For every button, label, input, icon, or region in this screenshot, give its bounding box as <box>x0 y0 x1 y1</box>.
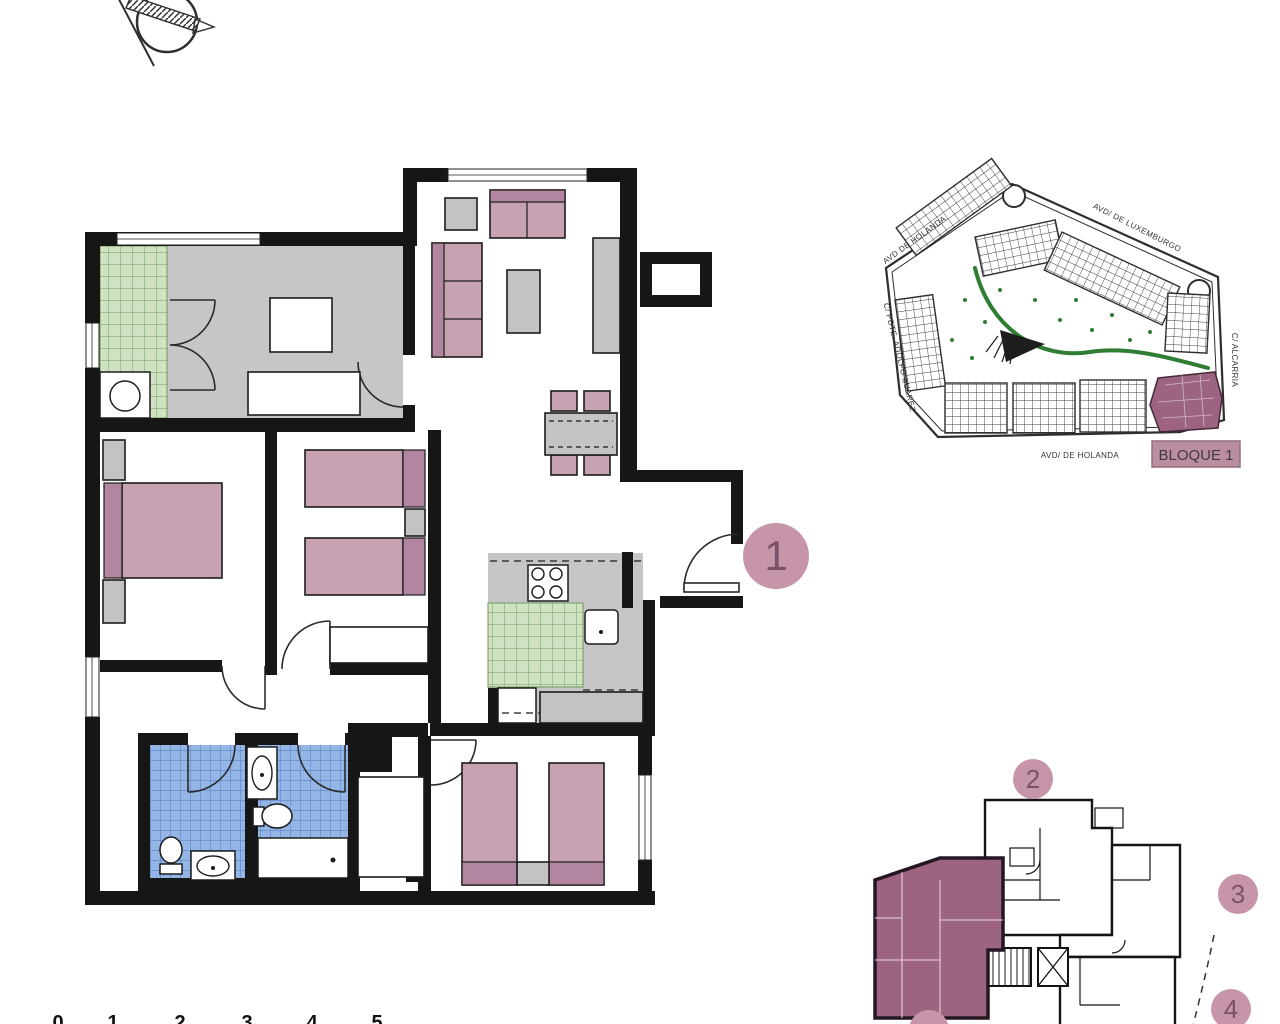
key-apartment-1-highlighted <box>875 858 1003 1018</box>
hall-wardrobe <box>358 777 424 877</box>
site-plan: AVD DE HOLANDA AVD/ DE LUXEMBURGO C/ PDT… <box>881 159 1240 467</box>
kitchen-sink <box>585 610 618 644</box>
unit-marker-1-label: 1 <box>764 532 787 579</box>
toilet <box>253 804 292 828</box>
kitchen-low-counter <box>540 692 643 723</box>
scale-tick-1: 1 <box>107 1012 118 1024</box>
building-key-plan: 2 3 4 <box>875 759 1258 1024</box>
fridge <box>498 688 536 723</box>
floorplan-drawing: 1 AVD DE HOLAN <box>0 0 1280 1024</box>
unit-marker-4: 4 <box>1211 989 1251 1024</box>
window <box>448 169 587 181</box>
hob <box>528 565 568 601</box>
bathtub <box>258 838 348 878</box>
amphitheater <box>986 330 1045 364</box>
double-bed <box>103 440 222 623</box>
washing-machine <box>100 372 150 418</box>
main-floor-plan: 1 <box>85 168 809 905</box>
door <box>282 621 330 669</box>
dining-set <box>545 391 617 475</box>
twin-beds <box>305 450 425 595</box>
coffee-table <box>507 270 540 333</box>
sofa-lounge <box>432 243 482 357</box>
sofa-two-seat <box>490 190 565 238</box>
entry-door <box>684 534 739 592</box>
table <box>270 298 332 352</box>
window <box>86 323 99 368</box>
street-label-luxemburgo: AVD/ DE LUXEMBURGO <box>1092 202 1183 254</box>
unit-marker-2-label: 2 <box>1026 764 1040 794</box>
sideboard <box>248 372 360 415</box>
scale-tick-0: 0 <box>52 1012 63 1024</box>
key-apartment-4 <box>1060 957 1175 1024</box>
bloque-label: BLOQUE 1 <box>1152 441 1240 467</box>
north-compass-icon <box>112 0 214 66</box>
kitchen-tiled-floor <box>488 603 583 687</box>
window <box>639 775 651 860</box>
side-table <box>445 198 477 230</box>
plot-dashed-boundary <box>1193 935 1214 1024</box>
street-label-holanda-bottom: AVD/ DE HOLANDA <box>1041 451 1120 460</box>
unit-marker-3: 3 <box>1218 874 1258 914</box>
street-label-alcarria: C/ ALCARRIA <box>1230 333 1239 387</box>
twin-beds-bottom <box>462 763 604 885</box>
scale-tick-2: 2 <box>174 1012 185 1024</box>
bloque-label-text: BLOQUE 1 <box>1158 447 1233 464</box>
scale-tick-4: 4 <box>306 1012 318 1024</box>
wardrobe <box>330 627 428 663</box>
scale-tick-5: 5 <box>371 1012 382 1024</box>
toilet <box>160 837 182 874</box>
tv-sideboard <box>593 238 620 353</box>
stair-core <box>985 948 1068 986</box>
window <box>86 657 99 717</box>
unit-marker-2: 2 <box>1013 759 1053 799</box>
floorplan-sheet: 1 AVD DE HOLAN <box>0 0 1280 1024</box>
window <box>117 233 260 245</box>
scale-bar: 0 1 2 3 4 5 <box>52 1012 382 1024</box>
scale-tick-3: 3 <box>241 1012 252 1024</box>
unit-marker-4-label: 4 <box>1224 994 1238 1024</box>
unit-marker-3-label: 3 <box>1231 879 1245 909</box>
unit-marker-1: 1 <box>743 523 809 589</box>
washbasin <box>247 747 277 799</box>
door <box>222 666 265 709</box>
washbasin <box>191 851 235 880</box>
